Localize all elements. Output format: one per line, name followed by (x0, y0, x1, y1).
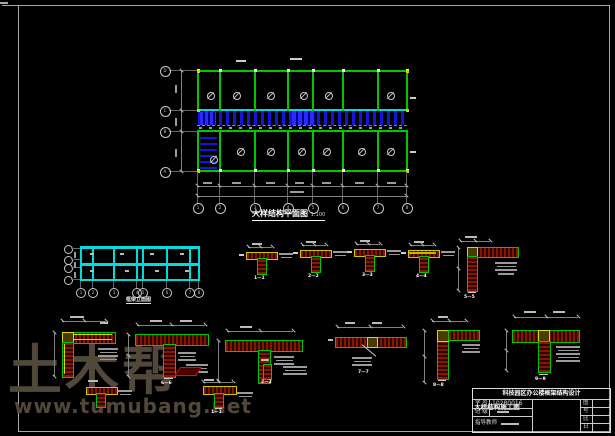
dim-text-illegible (497, 266, 516, 268)
section-label: 9—9 (535, 378, 546, 383)
dim-text-illegible (266, 182, 275, 184)
dim-text-illegible (387, 182, 396, 184)
plan-axis-bubble-left: A (160, 167, 171, 178)
dim-tick (456, 245, 460, 249)
dim-tick (179, 169, 183, 173)
elev-axis-bubble: 8 (194, 288, 204, 298)
elev-column (92, 246, 94, 281)
plan-column-line (342, 130, 344, 172)
dim-line (197, 196, 406, 197)
dim-tick (52, 330, 56, 334)
dim-tick (504, 368, 508, 372)
plan-axis-bubble: 2 (215, 203, 226, 214)
dim-text-illegible (553, 311, 565, 313)
plan-column-line (254, 130, 256, 172)
dim-text-illegible (98, 348, 118, 350)
plan-column-line (377, 130, 379, 172)
dim-text-illegible (355, 182, 364, 184)
dim-text-illegible (203, 182, 212, 184)
dim-text-illegible (345, 322, 355, 324)
plan-axis-bubble-left: C (160, 106, 171, 117)
dim-text-illegible (239, 396, 252, 398)
dim-text-illegible (556, 346, 580, 348)
plan-column-line (197, 130, 199, 172)
titleblock-header: 科技园区办公楼框架结构设计 (473, 391, 610, 397)
dim-tick (246, 244, 250, 248)
dim-text-illegible (283, 366, 307, 368)
dim-tick (164, 378, 173, 379)
dim-tick (539, 374, 548, 375)
column-section (538, 341, 551, 373)
section-label: 7—7 (358, 371, 369, 376)
dim-tick (422, 354, 426, 358)
dim-text-illegible (100, 352, 117, 354)
dim-text-illegible (155, 270, 159, 272)
field-label-student-id: 学 号 (475, 401, 488, 407)
dim-tick (504, 348, 508, 352)
plan-top-beam (197, 70, 407, 72)
dim-text-illegible (328, 339, 333, 341)
dim-text-illegible (360, 240, 370, 242)
dim-text-illegible (441, 251, 455, 253)
plan-axis-bubble: 6 (338, 203, 349, 214)
dim-tick (335, 324, 339, 328)
node-marker-yellow (197, 109, 200, 112)
dim-text-illegible (175, 118, 177, 126)
dim-tick (408, 242, 412, 246)
dim-line (218, 340, 219, 380)
dim-text-illegible (285, 370, 306, 372)
beam-yellow-core (409, 252, 436, 254)
plan-axis-bubble-left: B (160, 127, 171, 138)
dim-text-illegible (335, 255, 346, 257)
dim-text-illegible (237, 392, 253, 394)
field-value-student-id: 10280016 (492, 401, 523, 407)
extension-line (219, 172, 220, 204)
node-marker (312, 69, 315, 72)
dim-tick (215, 408, 222, 409)
dim-line (54, 332, 55, 376)
tb-right-label-3: 日 (583, 425, 589, 431)
dim-text-illegible (322, 182, 331, 184)
tb-right-label-0: 图 (583, 401, 589, 407)
elev-axis-bubble-left (64, 276, 73, 285)
field-value-advisor-illegible (501, 423, 519, 425)
dim-tick (179, 108, 183, 112)
dim-text-illegible (98, 355, 118, 357)
dim-text-illegible (204, 379, 214, 381)
dim-tick (135, 322, 139, 326)
dim-tick (512, 314, 516, 318)
column-section (419, 256, 429, 273)
dim-text-illegible (462, 344, 480, 346)
title-block: 科技园区办公楼框架结构设计 学 号 10280016 班 级 指导教师 大样结构… (472, 388, 611, 433)
dim-tick (179, 129, 183, 133)
plan-axis-bubble: 1 (193, 203, 204, 214)
elevation-title: 框架立面图 (126, 296, 151, 304)
dim-text-illegible (125, 270, 129, 272)
elev-column (80, 246, 82, 281)
stair-hatch-center (292, 111, 316, 125)
extension-line (197, 172, 198, 204)
elev-axis-bubble: 6 (162, 288, 172, 298)
node-marker-yellow (197, 70, 200, 73)
dim-text-illegible (120, 394, 131, 396)
extension-line (71, 248, 80, 249)
plan-column-line (254, 70, 256, 111)
dim-text-illegible (74, 272, 76, 278)
column-section (257, 258, 267, 275)
dim-tick (60, 318, 64, 322)
dim-tick (422, 328, 426, 332)
elev-axis-bubble-left (64, 245, 73, 254)
dim-tick (300, 242, 304, 246)
dim-text-illegible (465, 236, 477, 238)
dim-text-illegible (389, 254, 400, 256)
elev-axis-bubble: 3 (109, 288, 119, 298)
dim-text-illegible (438, 316, 448, 318)
section-label: 1—1 (211, 411, 222, 416)
dim-text-illegible (252, 243, 262, 245)
dim-text-illegible (306, 241, 316, 243)
dim-text-illegible (100, 359, 117, 361)
dim-tick (456, 266, 460, 270)
node-marker (377, 69, 380, 72)
dim-text-illegible (283, 373, 307, 375)
elev-axis-bubble: 1 (76, 288, 86, 298)
dim-text-illegible (232, 182, 241, 184)
dim-text-illegible (279, 253, 293, 255)
stair-hatch-left (200, 112, 216, 125)
extension-line (406, 172, 407, 204)
extension-line (287, 172, 288, 204)
elev-column (142, 246, 144, 281)
node-marker-yellow (406, 109, 409, 112)
dim-text-illegible (295, 182, 304, 184)
extension-line (71, 279, 80, 280)
dim-tick (126, 332, 130, 336)
elev-ground-line (80, 279, 200, 281)
dim-text-illegible (387, 250, 401, 252)
plan-column-line (287, 70, 289, 111)
elev-column (189, 246, 191, 281)
dim-text-illegible (464, 348, 479, 350)
plan-scale: 1:100 (311, 212, 325, 218)
node-marker-yellow (406, 70, 409, 73)
dim-text-illegible (90, 270, 94, 272)
dim-text-illegible (556, 353, 580, 355)
dim-text-illegible (495, 269, 517, 271)
tb-right-label-1: 号 (583, 409, 589, 415)
dim-text-illegible (261, 359, 269, 361)
dim-text-illegible (290, 58, 302, 60)
dim-text-illegible (556, 360, 580, 362)
dim-tick (52, 374, 56, 378)
extension-line (377, 172, 378, 204)
dim-text-illegible (333, 251, 347, 253)
plan-dashed-line (197, 125, 407, 126)
elev-column (166, 246, 168, 281)
dim-text-illegible (150, 253, 154, 255)
dim-text-illegible (118, 390, 132, 392)
elev-axis-bubble: 2 (88, 288, 98, 298)
dim-text-illegible (372, 322, 382, 324)
dim-text-illegible (274, 363, 294, 365)
elev-column (198, 246, 200, 281)
elev-column (113, 246, 115, 281)
elev-floor-beam (80, 263, 200, 266)
plan-column-line (312, 70, 314, 111)
dim-tick (195, 183, 199, 187)
plan-column-line (342, 70, 344, 111)
node-marker (287, 69, 290, 72)
dim-tick (216, 338, 220, 342)
elev-column (136, 246, 138, 281)
elev-roof-beam (80, 246, 200, 249)
column-rebar-line (64, 344, 65, 374)
field-label-class: 班 级 (475, 410, 488, 416)
node-marker (342, 69, 345, 72)
dim-text-illegible (347, 251, 352, 253)
dim-text-illegible (74, 252, 76, 258)
dim-text-illegible (239, 254, 244, 256)
dim-tick (456, 288, 460, 292)
plan-column-line (377, 70, 379, 111)
dim-text-illegible (90, 253, 94, 255)
plan-bottom-beam (197, 170, 407, 172)
plan-column-line (197, 70, 199, 111)
plan-column-line (219, 70, 221, 111)
dim-text-illegible (70, 316, 84, 318)
dim-text-illegible (180, 253, 184, 255)
dim-text-illegible (74, 262, 76, 268)
plan-title: 大样结构平面图 1:100 (252, 208, 325, 221)
dim-text-illegible (401, 252, 406, 254)
dim-text-illegible (462, 351, 480, 353)
dim-text-illegible (293, 252, 298, 254)
section-label: 2—2 (261, 381, 272, 386)
section-label: 2—2 (308, 275, 319, 280)
corridor-tick-row (199, 127, 406, 129)
dim-tick (504, 328, 508, 332)
plan-axis-bubble-left: D (160, 66, 171, 77)
dim-text-illegible (120, 253, 124, 255)
dim-line (181, 70, 182, 171)
dim-text-illegible (274, 356, 294, 358)
dim-text-illegible (180, 356, 195, 358)
dim-text-illegible (100, 322, 108, 324)
extension-line (312, 172, 313, 204)
field-value-class-illegible (497, 411, 509, 413)
dim-text-illegible (276, 360, 293, 362)
dim-tick (126, 374, 130, 378)
joint-core (367, 337, 378, 348)
field-label-advisor: 指导教师 (475, 421, 497, 427)
dim-tick (422, 380, 426, 384)
dim-tick (126, 353, 130, 357)
plan-title-text: 大样结构平面图 (252, 209, 308, 218)
plan-axis-bubble: 7 (373, 203, 384, 214)
dim-text-illegible (281, 257, 292, 259)
dim-text-illegible (180, 320, 192, 322)
tb-right-label-2: 比 (583, 417, 589, 423)
column-section (163, 344, 176, 378)
dim-text-illegible (240, 326, 252, 328)
plan-column-line (219, 130, 221, 172)
plan-column-line (312, 130, 314, 172)
cad-canvas: 土木帮 www.tumubang.net 12345678DCBA1234567… (0, 0, 615, 436)
dim-text-illegible (236, 60, 246, 62)
beam-section (448, 330, 480, 341)
column-section (365, 255, 375, 272)
section-label: 6—6 (161, 382, 172, 387)
dim-text-illegible (185, 270, 189, 272)
column-section (214, 393, 224, 408)
red-wedge-base (179, 375, 197, 376)
dim-text-illegible (414, 241, 424, 243)
dim-text-illegible (558, 357, 579, 359)
dim-text-illegible (88, 380, 98, 382)
dim-tick (354, 241, 358, 245)
dim-text-illegible (352, 364, 372, 366)
dim-text-illegible (290, 191, 304, 193)
extension-line (71, 267, 80, 268)
node-marker (219, 69, 222, 72)
extension-line (342, 172, 343, 204)
plan-axis-bubble: 8 (402, 203, 413, 214)
plan-column-line (406, 70, 408, 111)
dim-tick (458, 238, 462, 242)
dim-tick (438, 380, 446, 381)
column-section (96, 393, 106, 408)
dim-line (197, 186, 406, 187)
section-label: 4—4 (416, 275, 427, 280)
plan-column-line (287, 130, 289, 172)
dim-text-illegible (410, 151, 416, 153)
dim-text-illegible (524, 311, 536, 313)
dim-text-illegible (558, 350, 579, 352)
dim-text-illegible (443, 255, 454, 257)
dim-text-illegible (498, 273, 514, 275)
section-label: 3—3 (362, 274, 373, 279)
column-section (467, 256, 478, 292)
dim-tick (430, 318, 434, 322)
column-section (263, 364, 272, 380)
dim-text-illegible (410, 97, 416, 99)
dim-tick (179, 68, 183, 72)
dim-text-illegible (175, 85, 177, 93)
dim-text-illegible (175, 149, 177, 157)
section-label: 5—5 (464, 296, 475, 301)
extension-line (254, 172, 255, 204)
dim-text-illegible (352, 357, 372, 359)
dim-tick (225, 328, 229, 332)
extension-line (71, 259, 80, 260)
section-label: 1—1 (254, 277, 265, 282)
dim-text-illegible (178, 352, 196, 354)
dim-tick (195, 193, 199, 197)
section-label: 8—8 (433, 384, 444, 389)
dim-tick (468, 292, 476, 293)
elev-axis-bubble-left (64, 264, 73, 273)
dim-text-illegible (150, 320, 162, 322)
dim-text-illegible (354, 361, 371, 363)
plan-mid-beam (197, 130, 407, 132)
node-marker (254, 69, 257, 72)
dim-text-illegible (178, 359, 196, 361)
dim-text-illegible (495, 262, 517, 264)
plan-column-line (406, 130, 408, 172)
column-section (311, 256, 321, 273)
dim-text-illegible (186, 364, 208, 366)
